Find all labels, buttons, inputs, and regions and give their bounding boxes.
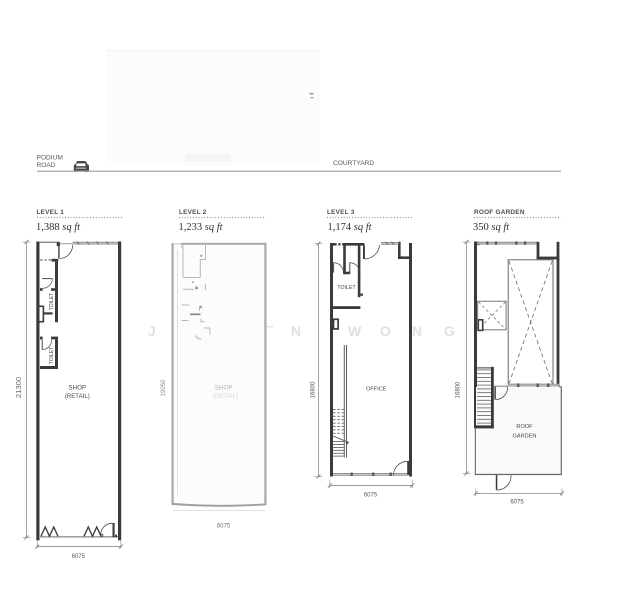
svg-text:21300: 21300 — [14, 377, 23, 398]
svg-text:6075: 6075 — [510, 500, 524, 506]
svg-text:16800: 16800 — [456, 381, 462, 398]
svg-text:COURTYARD: COURTYARD — [333, 160, 374, 167]
svg-text:LEVEL 2: LEVEL 2 — [179, 209, 207, 216]
svg-text:1,388 sq ft: 1,388 sq ft — [36, 222, 81, 233]
svg-text:G: G — [444, 323, 455, 339]
svg-text:TOILET: TOILET — [49, 293, 55, 310]
svg-text:TOILET: TOILET — [337, 285, 356, 291]
svg-text:N: N — [412, 323, 422, 339]
svg-text:GARDEN: GARDEN — [513, 434, 537, 440]
svg-text:J: J — [148, 323, 156, 339]
svg-text:W: W — [348, 323, 362, 339]
svg-text:O: O — [380, 323, 391, 339]
svg-text:1,233 sq ft: 1,233 sq ft — [179, 222, 224, 233]
svg-text:LEVEL 1: LEVEL 1 — [37, 209, 65, 216]
svg-text:6075: 6075 — [217, 524, 231, 530]
svg-text:(RETAIL): (RETAIL) — [65, 393, 90, 400]
svg-text:6075: 6075 — [364, 493, 378, 499]
svg-text:ROOF GARDEN: ROOF GARDEN — [474, 209, 525, 216]
svg-text:ROOF: ROOF — [516, 424, 533, 430]
svg-text:6075: 6075 — [72, 554, 86, 560]
svg-text:OFFICE: OFFICE — [366, 387, 387, 393]
svg-text:N: N — [291, 323, 301, 339]
svg-text:19050: 19050 — [161, 379, 167, 396]
svg-text:TOILET: TOILET — [49, 347, 55, 364]
svg-text:16800: 16800 — [311, 381, 317, 398]
svg-text:1,174 sq ft: 1,174 sq ft — [328, 222, 373, 233]
svg-text:SHOP: SHOP — [68, 385, 86, 392]
svg-text:(RETAIL): (RETAIL) — [213, 393, 238, 400]
svg-text:ROAD: ROAD — [37, 162, 56, 169]
svg-text:SHOP: SHOP — [215, 385, 233, 392]
svg-text:LEVEL 3: LEVEL 3 — [327, 209, 355, 216]
svg-text:350 sq ft: 350 sq ft — [473, 222, 510, 233]
svg-text:PODIUM: PODIUM — [37, 155, 63, 162]
